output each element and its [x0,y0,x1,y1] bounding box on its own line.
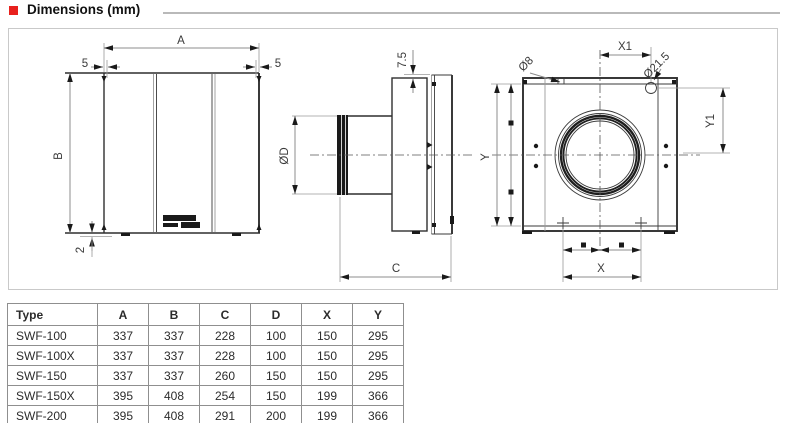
cell-y: 366 [353,406,404,423]
cell-c: 228 [200,326,251,346]
cell-b: 337 [149,346,200,366]
cell-a: 337 [98,346,149,366]
dim-label-dia8: Ø8 [517,55,536,74]
dim-label-Y1: Y1 [705,114,717,128]
cell-type: SWF-150 [8,366,98,386]
cell-a: 395 [98,406,149,423]
cell-x: 199 [302,406,353,423]
cell-b: 337 [149,366,200,386]
dimensions-page: Dimensions (mm) [0,0,789,423]
col-header-y: Y [353,304,404,326]
dim-label-OD: ØD [279,147,291,164]
cell-c: 291 [200,406,251,423]
table-row: SWF-150 337 337 260 150 150 295 [8,366,404,386]
cell-d: 150 [251,386,302,406]
cell-y: 295 [353,366,404,386]
cell-c: 228 [200,346,251,366]
col-header-type: Type [8,304,98,326]
fan-body [392,78,427,231]
dim-label-Y: Y [480,153,492,161]
dim-label-C: C [392,263,400,275]
product-label-sticker [163,215,200,228]
cell-a: 395 [98,386,149,406]
table-row: SWF-100X 337 337 228 100 150 295 [8,346,404,366]
side-view: ØD 7.5 C [279,50,472,282]
col-header-c: C [200,304,251,326]
cell-type: SWF-100 [8,326,98,346]
cell-d: 100 [251,346,302,366]
cell-y: 295 [353,346,404,366]
foot-mark [121,233,130,236]
header-divider [163,12,780,14]
cell-type: SWF-100X [8,346,98,366]
cell-b: 408 [149,406,200,423]
dim-label-7-5: 7.5 [397,52,409,68]
dim-label-5-left: 5 [82,58,88,70]
cell-a: 337 [98,366,149,386]
col-header-a: A [98,304,149,326]
cell-x: 150 [302,346,353,366]
cell-d: 200 [251,406,302,423]
dimensions-table: Type A B C D X Y SWF-100 337 337 228 100… [7,303,404,423]
cell-b: 337 [149,326,200,346]
back-view: Y X1 Ø8 Ø21.5 Y1 [480,41,730,282]
dim-label-5-right: 5 [275,58,281,70]
table-row: SWF-150X 395 408 254 150 199 366 [8,386,404,406]
dim-label-X1: X1 [618,41,632,53]
cell-x: 150 [302,366,353,386]
cell-d: 150 [251,366,302,386]
page-title: Dimensions (mm) [27,2,140,17]
dim-label-2: 2 [75,247,87,253]
front-view: A 5 5 B 2 [53,35,281,257]
table-row: SWF-200 395 408 291 200 199 366 [8,406,404,423]
section-bullet-icon [9,6,18,15]
cell-d: 100 [251,326,302,346]
cell-type: SWF-150X [8,386,98,406]
table-header-row: Type A B C D X Y [8,304,404,326]
cell-c: 254 [200,386,251,406]
dim-label-B: B [53,152,65,160]
cell-c: 260 [200,366,251,386]
table-row: SWF-100 337 337 228 100 150 295 [8,326,404,346]
dim-label-A: A [177,35,185,47]
col-header-d: D [251,304,302,326]
cell-b: 408 [149,386,200,406]
technical-drawing: A 5 5 B 2 [9,29,778,289]
cell-x: 199 [302,386,353,406]
dimension-drawing-panel: A 5 5 B 2 [8,28,778,290]
col-header-x: X [302,304,353,326]
cell-y: 295 [353,326,404,346]
cell-type: SWF-200 [8,406,98,423]
cell-y: 366 [353,386,404,406]
cell-a: 337 [98,326,149,346]
foot-mark [232,233,241,236]
dim-label-X: X [597,263,605,275]
cell-x: 150 [302,326,353,346]
col-header-b: B [149,304,200,326]
